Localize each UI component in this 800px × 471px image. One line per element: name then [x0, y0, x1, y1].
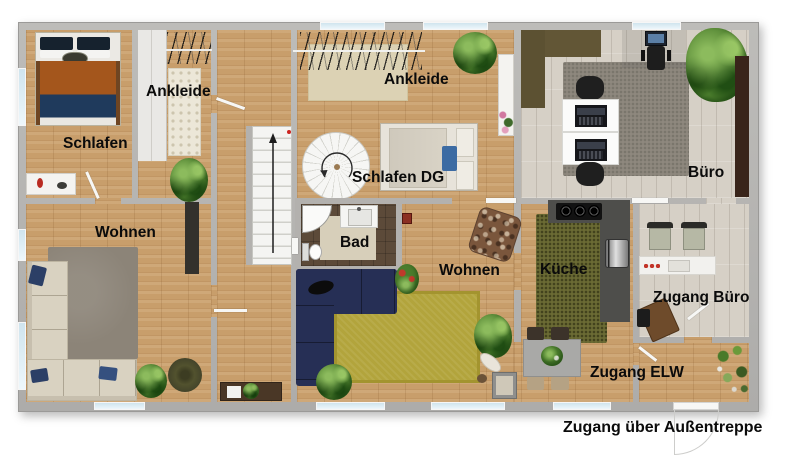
sideboard-drawer: [668, 260, 690, 272]
pc-screen: [577, 142, 605, 149]
stair-up-arrow: [253, 127, 293, 264]
toilet-tank: [302, 243, 309, 261]
bowl-decor: [57, 182, 67, 189]
potted-plant: [453, 32, 497, 74]
door-leaf-bad: [292, 238, 298, 254]
monitor: [645, 31, 667, 46]
bed-dg-pillow: [456, 128, 474, 157]
dining-chair: [551, 377, 569, 390]
room-label-zugang-elw: Zugang ELW: [590, 365, 684, 381]
desktop-pc: [575, 105, 607, 127]
window-top-buero: [632, 22, 681, 30]
floor-plan: Schlafen Ankleide Ankleide Schlafen DG B…: [0, 0, 800, 471]
potted-plant: [316, 364, 352, 400]
clothes-rack-rail: [293, 50, 425, 52]
clothes-rail-hangers: [167, 32, 211, 64]
room-label-schlafen-dg: Schlafen DG: [352, 170, 444, 186]
entrance-door: [673, 402, 719, 410]
window-bottom-2: [316, 402, 385, 410]
door-opening-buero: [706, 198, 736, 204]
window-bottom-3: [431, 402, 505, 410]
flower-arrangement: [710, 340, 754, 398]
chair-armrest: [641, 50, 645, 61]
door-leaf-center: [486, 198, 516, 203]
wall-center: [402, 198, 452, 204]
pc-keyboard: [579, 117, 603, 125]
door-leaf-wohnen-left: [214, 309, 247, 312]
trellis-rug: [168, 68, 201, 156]
refrigerator: [605, 239, 629, 268]
straight-staircase: [252, 126, 292, 265]
dresser: [26, 173, 76, 195]
sink: [348, 209, 372, 226]
room-label-schlafen: Schlafen: [63, 136, 128, 152]
window-left-wohnen-2: [18, 322, 26, 390]
room-label-kueche: Küche: [540, 262, 587, 278]
chair-armrest: [667, 50, 671, 61]
tall-cabinet: [735, 56, 749, 197]
desk-chair: [637, 309, 650, 327]
armchair: [649, 228, 671, 250]
room-label-wohnen-left: Wohnen: [95, 225, 156, 241]
sideboard: [639, 256, 716, 275]
monitor-screen: [648, 34, 664, 43]
window-bottom-4: [553, 402, 611, 410]
potted-plant: [243, 383, 259, 399]
dining-chair: [527, 327, 544, 340]
door-opening-elw-top: [684, 337, 712, 343]
table-plant: [541, 346, 563, 366]
dining-chair: [551, 327, 569, 340]
armchair: [683, 228, 705, 250]
pc-screen: [577, 108, 605, 115]
side-stool: [492, 372, 517, 399]
door-leaf-buero: [632, 198, 668, 203]
dog-head: [477, 374, 487, 383]
flower-pot: [402, 213, 412, 224]
room-label-wohnen-center: Wohnen: [439, 263, 500, 279]
bed-pillow-dark: [77, 37, 110, 50]
stool-top: [496, 376, 513, 395]
room-label-ankleide-left: Ankleide: [146, 84, 211, 100]
office-chair: [647, 46, 665, 70]
potted-plant: [170, 158, 208, 202]
window-top-1: [320, 22, 385, 30]
room-label-bad: Bad: [340, 235, 369, 251]
cooktop: [556, 203, 602, 220]
pouf: [168, 358, 202, 392]
faucet: [357, 207, 361, 211]
toilet: [309, 244, 322, 260]
bed-dg-pillow: [456, 161, 474, 190]
entrance-annotation: Zugang über Außentreppe: [563, 420, 762, 436]
window-left-wohnen-1: [18, 229, 26, 261]
window-left-schlafen: [18, 68, 26, 126]
window-bottom-1: [94, 402, 145, 410]
pc-keyboard: [579, 151, 603, 159]
palm-plant: [474, 314, 512, 358]
kitchen-rug: [536, 214, 607, 343]
flower-decor: [37, 178, 43, 188]
marker-dot: [287, 130, 291, 134]
flowering-plant: [395, 264, 419, 294]
clothes-rail: [166, 49, 212, 51]
room-label-buero: Büro: [688, 165, 724, 181]
vanity: [340, 205, 378, 228]
door-opening-wohnen-left: [211, 285, 217, 317]
desk: [562, 99, 619, 132]
window-top-2: [423, 22, 488, 30]
sofa-pillow: [98, 366, 117, 381]
tv-board: [185, 202, 199, 274]
room-label-zugang-buero: Zugang Büro: [653, 290, 749, 306]
bed-blanket: [36, 61, 120, 125]
console-pad: [227, 386, 241, 398]
bed-dg-blue-pillow: [442, 146, 457, 171]
sideboard-decor-dots: [644, 264, 660, 268]
office-chair: [576, 76, 604, 100]
room-label-ankleide-center: Ankleide: [384, 72, 449, 88]
passage-kueche-a: [514, 253, 521, 290]
flower-decor: [498, 106, 514, 136]
potted-plant: [135, 364, 167, 398]
sofa-pillow: [30, 368, 49, 383]
bed-pillow-dark: [40, 37, 73, 50]
office-chair: [576, 162, 604, 186]
desk: [562, 132, 619, 165]
door-opening-schlafen: [95, 198, 121, 204]
dining-chair: [527, 377, 544, 390]
desktop-pc: [575, 139, 607, 161]
double-bed: [35, 32, 121, 126]
spiral-staircase: [302, 132, 370, 200]
office-sideboard-left: [521, 30, 545, 108]
